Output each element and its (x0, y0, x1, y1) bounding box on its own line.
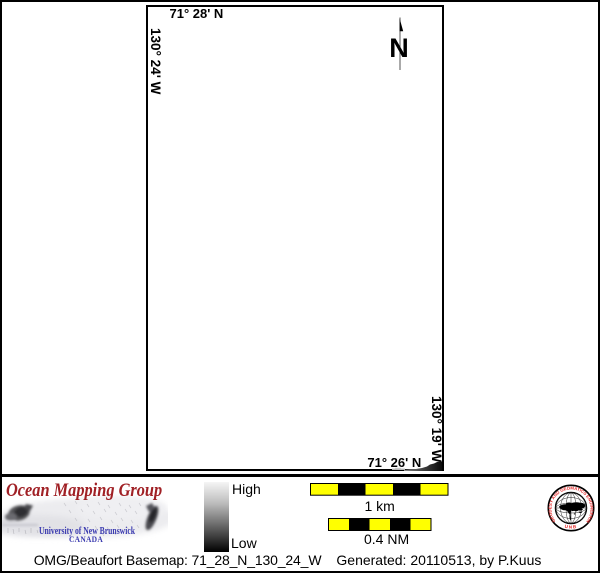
svg-text:UNB: UNB (564, 524, 578, 530)
